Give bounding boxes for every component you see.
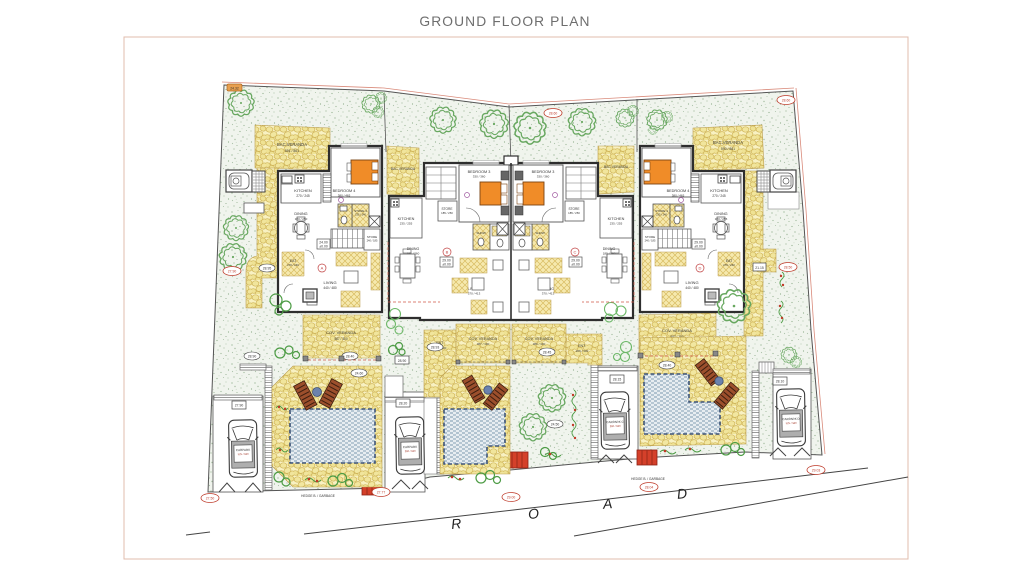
svg-text:HEDGE B. / GARBAGE: HEDGE B. / GARBAGE <box>301 494 335 498</box>
svg-text:28.90: 28.90 <box>398 359 407 363</box>
svg-text:525 / 580: 525 / 580 <box>786 421 797 425</box>
svg-text:LIVING: LIVING <box>323 280 336 285</box>
svg-text:D: D <box>676 485 687 502</box>
svg-text:21.15: 21.15 <box>755 266 764 270</box>
svg-text:CARPARK C: CARPARK C <box>606 420 624 424</box>
svg-text:BAC.VERANDA: BAC.VERANDA <box>391 167 416 171</box>
svg-text:28.10: 28.10 <box>776 379 785 383</box>
svg-text:389 / 300: 389 / 300 <box>533 342 546 346</box>
svg-text:BEDROOM 4: BEDROOM 4 <box>667 189 690 193</box>
svg-text:28.04: 28.04 <box>645 485 654 489</box>
svg-text:28.45: 28.45 <box>543 350 552 354</box>
svg-text:BEDROOM 3: BEDROOM 3 <box>468 170 491 174</box>
svg-text:CARPARK: CARPARK <box>403 445 417 449</box>
svg-text:A: A <box>601 495 613 512</box>
svg-text:SHOW: SHOW <box>476 231 486 235</box>
svg-text:330 / 360: 330 / 360 <box>473 175 486 179</box>
svg-text:387 / 300: 387 / 300 <box>477 342 490 346</box>
svg-text:380 / 465: 380 / 465 <box>672 194 685 198</box>
svg-text:BAC.VERANDA: BAC.VERANDA <box>604 165 629 169</box>
svg-text:270 / 245: 270 / 245 <box>712 194 726 198</box>
svg-text:205 / 300: 205 / 300 <box>576 349 589 353</box>
svg-text:590 / 861: 590 / 861 <box>721 147 735 151</box>
svg-text:±0.00: ±0.00 <box>694 245 703 249</box>
svg-text:24.32: 24.32 <box>230 86 239 90</box>
svg-text:380 / 465: 380 / 465 <box>338 194 351 198</box>
svg-text:330 / 360: 330 / 360 <box>537 175 550 179</box>
svg-text:28.15: 28.15 <box>613 377 622 381</box>
svg-text:CARPARK D: CARPARK D <box>782 417 800 421</box>
svg-text:370 / 413: 370 / 413 <box>542 292 555 296</box>
svg-text:24.50: 24.50 <box>551 422 560 426</box>
svg-text:185 / 250: 185 / 250 <box>568 211 580 215</box>
svg-text:27.77: 27.77 <box>377 490 386 494</box>
svg-text:587 / 300: 587 / 300 <box>334 337 348 341</box>
svg-text:R: R <box>450 515 461 532</box>
svg-text:STORE: STORE <box>367 235 377 239</box>
svg-text:D: D <box>699 266 702 271</box>
svg-text:235 / 255: 235 / 255 <box>400 222 413 226</box>
svg-text:28.60: 28.60 <box>782 98 791 102</box>
svg-text:COV. VERANDA: COV. VERANDA <box>525 337 554 341</box>
svg-text:440 / 480: 440 / 480 <box>685 286 699 290</box>
svg-text:BAC.VERANDA: BAC.VERANDA <box>277 142 307 147</box>
svg-text:KITCHEN: KITCHEN <box>294 188 312 193</box>
svg-text:±0.00: ±0.00 <box>319 245 328 249</box>
svg-text:STORE 4: STORE 4 <box>354 209 367 213</box>
svg-text:28.50: 28.50 <box>784 265 793 269</box>
svg-text:440 / 480: 440 / 480 <box>323 286 337 290</box>
svg-text:270 / 245: 270 / 245 <box>296 194 310 198</box>
svg-text:LIVING: LIVING <box>685 280 698 285</box>
svg-text:COV. VERANDA: COV. VERANDA <box>326 330 356 335</box>
svg-text:260 / 620: 260 / 620 <box>405 449 416 453</box>
svg-text:KITCHEN: KITCHEN <box>608 217 625 221</box>
svg-text:C: C <box>574 250 577 255</box>
svg-text:240 / 185: 240 / 185 <box>367 239 378 243</box>
svg-text:KITCHEN: KITCHEN <box>398 217 415 221</box>
svg-text:28.95: 28.95 <box>263 266 272 270</box>
svg-text:28.93: 28.93 <box>431 345 440 349</box>
svg-text:BAC.VERANDA: BAC.VERANDA <box>713 140 743 145</box>
svg-text:DINING: DINING <box>294 212 307 216</box>
svg-text:B: B <box>446 250 449 255</box>
svg-text:591 / 861: 591 / 861 <box>285 149 299 153</box>
svg-text:CARPARK: CARPARK <box>236 448 250 452</box>
svg-text:27.90: 27.90 <box>228 269 237 273</box>
svg-text:O: O <box>527 505 539 522</box>
svg-text:28.90: 28.90 <box>248 354 257 358</box>
svg-text:SHOW: SHOW <box>535 231 545 235</box>
svg-text:±0.00: ±0.00 <box>442 263 451 267</box>
svg-text:BEDROOM 3: BEDROOM 3 <box>532 170 555 174</box>
svg-text:STORE: STORE <box>645 235 655 239</box>
svg-text:GROUND FLOOR PLAN: GROUND FLOOR PLAN <box>419 14 590 29</box>
svg-text:28.40: 28.40 <box>346 354 355 358</box>
svg-text:235 / 240: 235 / 240 <box>355 213 366 217</box>
svg-text:240 / 185: 240 / 185 <box>645 239 656 243</box>
svg-text:COV. VERANDA: COV. VERANDA <box>469 337 498 341</box>
svg-text:28.40: 28.40 <box>663 363 672 367</box>
svg-text:185 / 250: 185 / 250 <box>441 211 453 215</box>
svg-text:HEDGE B. / GARBAGE: HEDGE B. / GARBAGE <box>631 477 665 481</box>
svg-text:235 / 255: 235 / 255 <box>610 222 623 226</box>
svg-text:235 / 240: 235 / 240 <box>656 213 667 217</box>
svg-text:DINING: DINING <box>714 212 727 216</box>
svg-text:STORE 4: STORE 4 <box>655 209 668 213</box>
svg-text:COV. VERANDA: COV. VERANDA <box>662 328 692 333</box>
svg-text:28.60: 28.60 <box>549 111 558 115</box>
svg-text:370 / 413: 370 / 413 <box>468 292 481 296</box>
svg-text:27.90: 27.90 <box>235 403 244 407</box>
svg-text:24.60: 24.60 <box>355 371 364 375</box>
svg-text:BEDROOM 4: BEDROOM 4 <box>333 189 356 193</box>
svg-text:A: A <box>321 266 324 271</box>
svg-text:270 / 240: 270 / 240 <box>723 263 735 267</box>
svg-text:29.03: 29.03 <box>812 468 821 472</box>
svg-text:29.00: 29.00 <box>507 495 516 499</box>
svg-text:27.50: 27.50 <box>206 496 215 500</box>
svg-text:28.20: 28.20 <box>399 401 408 405</box>
svg-text:ENT.: ENT. <box>578 344 586 348</box>
svg-text:±0.00: ±0.00 <box>571 263 580 267</box>
svg-text:KITCHEN: KITCHEN <box>710 188 728 193</box>
svg-text:260 / 620: 260 / 620 <box>610 424 621 428</box>
svg-text:525 / 620: 525 / 620 <box>238 452 249 456</box>
svg-text:270 / 240: 270 / 240 <box>287 263 299 267</box>
